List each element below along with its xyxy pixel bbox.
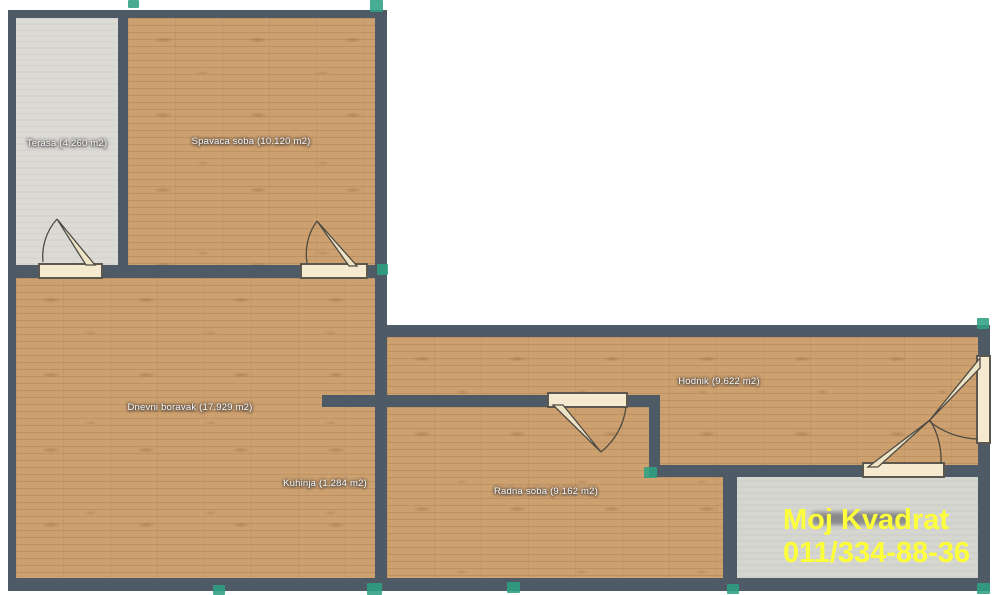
watermark: Moj Kvadrat 011/334-88-36 xyxy=(783,504,970,570)
watermark-phone: 011/334-88-36 xyxy=(783,537,970,570)
room-label-dnevni-boravak: Dnevni boravak (17.929 m2) xyxy=(127,403,252,413)
vertex-handle xyxy=(367,583,382,595)
door-arc-terasa xyxy=(43,219,57,262)
door-leaf-radna-soba xyxy=(553,405,601,452)
door-arc-terrace xyxy=(930,420,941,464)
room-label-spavaca-soba: Spavaca soba (10.120 m2) xyxy=(192,137,311,147)
watermark-brand: Moj Kvadrat xyxy=(783,504,970,537)
door-leaf-spavaca xyxy=(317,221,357,266)
vertex-handle xyxy=(370,0,383,12)
vertex-handle xyxy=(213,585,225,595)
door-leaf-right-wall xyxy=(929,358,980,421)
floor-plan: Terasa (4.260 m2) Spavaca soba (10.120 m… xyxy=(0,0,1000,595)
room-label-kuhinja: Kuhinja (1.284 m2) xyxy=(283,479,367,489)
vertex-handle xyxy=(377,264,388,275)
vertex-handle xyxy=(727,584,739,594)
room-label-terasa: Terasa (4.260 m2) xyxy=(27,139,108,149)
door-arc-right-wall xyxy=(929,421,978,439)
door-arc-radna-soba xyxy=(601,407,626,452)
vertex-handle xyxy=(977,583,990,594)
door-leaf-terrace xyxy=(868,420,930,467)
vertex-handle xyxy=(128,0,139,8)
room-label-hodnik: Hodnik (9.622 m2) xyxy=(678,377,760,387)
door-arc-spavaca xyxy=(306,221,317,263)
vertex-handle xyxy=(507,582,520,593)
door-leaf-terasa xyxy=(57,219,95,265)
room-label-radna-soba: Radna soba (9.162 m2) xyxy=(494,487,598,497)
vertex-handle xyxy=(977,318,989,329)
vertex-handle xyxy=(644,467,657,478)
